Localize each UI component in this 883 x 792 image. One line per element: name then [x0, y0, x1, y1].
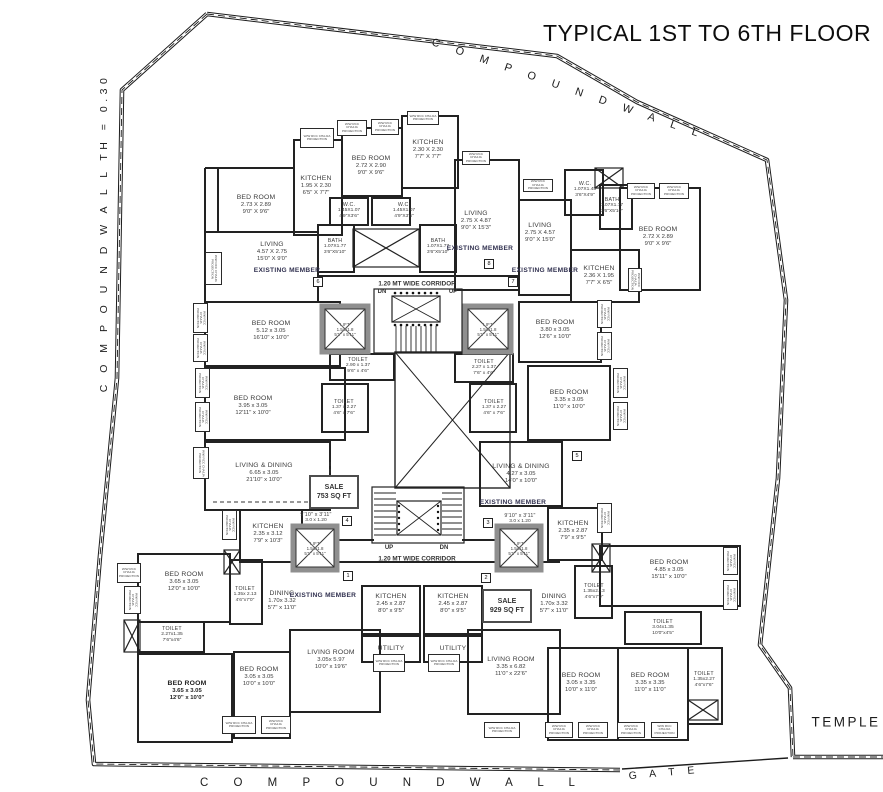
room-label: W.C.1.07X1.453'6"X4'9"	[574, 181, 596, 199]
room-label: LIVING4.57 X 2.7515'0" X 9'0"	[257, 241, 287, 263]
stair-up-label-upper: UP	[449, 289, 457, 295]
room-label: W.C.1.45X1.074'9"X3'6"	[338, 202, 360, 220]
flat-number-marker: 1	[343, 571, 353, 581]
room-label: BED ROOM2.72 X 2.899'0" X 9'6"	[639, 226, 678, 248]
room-label: KITCHEN1.95 X 2.306'5" X 7'7"	[300, 175, 331, 197]
stair-dn-label-lower: DN	[440, 545, 449, 551]
room-label: BED ROOM3.95 x 3.0512'11" x 10'0"	[234, 395, 273, 417]
room-label: KITCHEN2.35 x 3.127'9" x 10'3"	[252, 523, 283, 545]
room-label: BED ROOM3.35 x 3.0511'0" x 10'0"	[550, 389, 589, 411]
chajja-projection-box: W/W RCC CHAJJA PROJECTION	[124, 586, 141, 614]
lift-boxes	[293, 306, 541, 570]
chajja-projection-box: W/W RCC CHAJJA PROJECTION	[117, 563, 141, 583]
chajja-projection-box: W/W RCC CHAJJA PROJECTION	[613, 402, 628, 430]
chajja-projection-box: W/W RCC CHAJJA PROJECTION	[337, 120, 367, 136]
room-label: LIVING ROOM3.05x 5.9710'0" x 19'6"	[307, 649, 355, 671]
chajja-projection-box: W/W RCC CHAJJA PROJECTION	[222, 716, 256, 734]
room-label: DINING1.70x 3.325'7" x 11'0"	[540, 593, 569, 615]
flat-number-marker: 8	[484, 259, 494, 269]
room-label: UTILITY	[378, 645, 405, 653]
room-label: TOILET1.37 x 2.274'6" x 7'6"	[332, 399, 356, 417]
room-label: LIVING & DINING4.27 x 3.0514'0" x 10'0"	[492, 463, 549, 485]
room-label: KITCHEN2.35 x 2.877'9" x 9'5"	[557, 520, 588, 542]
chajja-projection-box: W/W RCC CHAJJA PROJECTION	[523, 179, 553, 192]
chajja-projection-box: W/W RCC CHAJJA PROJECTION	[627, 183, 655, 199]
room-label: LIFT1.54x1.85'1" x 5'11"	[477, 322, 498, 338]
room-label: TOILET3.04x1.3510'0"x4'5"	[652, 619, 673, 637]
flat-number-marker: 7	[508, 277, 518, 287]
staircase-lower	[372, 487, 464, 543]
corridor-label-upper: 1.20 MT WIDE CORRIDOR	[378, 281, 455, 288]
staircase-upper	[374, 289, 462, 353]
chajja-projection-box: W/W RCC CHAJJA PROJECTION	[597, 332, 612, 360]
page-title: TYPICAL 1ST TO 6TH FLOOR	[543, 20, 871, 47]
room-label: BED ROOM4.85 x 3.0515'11" x 10'0"	[650, 559, 689, 581]
room-label: TOILET2.90 x 1.379'6" x 4'6"	[346, 357, 370, 375]
room-label: LIVING ROOM3.35 x 6.8211'0" x 22'6"	[487, 656, 535, 678]
chajja-projection-box: W/W RCC CHAJJA PROJECTION	[613, 368, 628, 398]
chajja-projection-box: W/W RCC CHAJJA PROJECTION	[261, 716, 291, 734]
room-label: TOILET1.35x2.274'6"x7'6"	[693, 671, 714, 689]
room-label: BED ROOM3.05 x 3.3510'0" x 11'0"	[562, 672, 601, 694]
room-label: TOILET1.35x2.134'6"x7'0"	[583, 583, 604, 601]
duct-boxes	[124, 168, 718, 720]
room-label: BED ROOM3.65 x 3.0512'0" x 10'0"	[168, 680, 207, 702]
room-label: KITCHEN2.30 X 2.307'7" X 7'7"	[412, 139, 443, 161]
stair-up-label-lower: UP	[385, 545, 393, 551]
flat-number-marker: 2	[481, 573, 491, 583]
flat-number-marker: 4	[342, 516, 352, 526]
compound-wall-bottom-label: C O M P O U N D W A L L	[200, 777, 586, 789]
room-label: UTILITY	[440, 645, 467, 653]
compound-wall-left-label: C O M P O U N D W A L L TH = 0.30	[98, 74, 110, 393]
chajja-projection-box: W/W RCC CHAJJA PROJECTION	[484, 722, 520, 738]
chajja-projection-box: W/W RCC CHAJJA PROJECTION	[222, 510, 237, 540]
chajja-projection-box: W/W RCC CHAJJA PROJECTION	[659, 183, 689, 199]
flat-number-marker: 6	[313, 277, 323, 287]
room-label: LIVING2.75 X 4.879'0" X 15'3"	[461, 210, 491, 232]
existing-member-label: EXISTING MEMBER	[290, 592, 356, 600]
chajja-projection-box: W/W RCC CHAJJA PROJECTION	[193, 447, 209, 479]
chajja-projection-box: W/W RCC CHAJJA PROJECTION	[371, 119, 399, 135]
chajja-projection-box: W/W RCC CHAJJA PROJECTION	[407, 111, 439, 125]
room-label: LIFT1.54x1.85'1" x 5'11"	[508, 541, 529, 557]
chajja-projection-box: W/W RCC CHAJJA PROJECTION	[205, 252, 222, 285]
chajja-projection-box: W/W RCC CHAJJA PROJECTION	[651, 722, 678, 738]
chajja-projection-box: W/W RCC CHAJJA PROJECTION	[628, 268, 642, 292]
room-label: TOILET1.35x 2.134'6"x7'0"	[234, 586, 257, 604]
room-label: LIVING & DINING6.65 x 3.0521'10" x 10'0"	[235, 462, 292, 484]
corridor-label-lower: 1.20 MT WIDE CORRIDOR	[378, 556, 455, 563]
sale-area-tag: SALE929 SQ FT	[482, 589, 532, 623]
room-label: LIVING2.75 X 4.579'0" X 15'0"	[525, 222, 555, 244]
room-label: W.C.1.45X1.074'9"X3'6"	[393, 202, 415, 220]
room-label: BED ROOM2.72 X 2.909'0" X 9'6"	[352, 155, 391, 177]
room-label: BATH1.07X1.773'6"X5'10"	[601, 197, 623, 215]
chajja-projection-box: W/W RCC CHAJJA PROJECTION	[300, 128, 334, 148]
flat-number-marker: 5	[572, 451, 582, 461]
chajja-projection-box: W/W RCC CHAJJA PROJECTION	[597, 300, 612, 328]
chajja-projection-box: W/W RCC CHAJJA PROJECTION	[193, 334, 208, 362]
chajja-projection-box: W/W RCC CHAJJA PROJECTION	[373, 654, 405, 672]
flat-number-marker: 3	[483, 518, 493, 528]
room-label: BED ROOM3.80 x 3.0512'6" x 10'0"	[536, 319, 575, 341]
chajja-projection-box: W/W RCC CHAJJA PROJECTION	[723, 547, 738, 575]
floor-plan-page: TYPICAL 1ST TO 6TH FLOOR C O M P O U N D…	[0, 0, 883, 792]
chajja-projection-box: W/W RCC CHAJJA PROJECTION	[193, 303, 208, 333]
existing-member-label: EXISTING MEMBER	[512, 267, 578, 275]
room-label: BED ROOM3.35 x 3.3511'0" x 11'0"	[631, 672, 670, 694]
gate-line	[622, 758, 788, 769]
chajja-projection-box: W/W RCC CHAJJA PROJECTION	[462, 151, 490, 165]
room-label: 9'10" x 3'11"3.0 x 1.20	[300, 512, 331, 524]
chajja-projection-box: W/W RCC CHAJJA PROJECTION	[428, 654, 460, 672]
room-label: TOILET1.37 x 2.274'6" x 7'6"	[482, 399, 506, 417]
room-label: BED ROOM3.05 x 3.0510'0" x 10'0"	[240, 666, 279, 688]
chajja-projection-box: W/W RCC CHAJJA PROJECTION	[617, 722, 645, 738]
room-label: KITCHEN2.36 X 1.957'7" X 6'5"	[583, 265, 614, 287]
room-label: LIFT1.54x1.85'1" x 5'11"	[334, 322, 355, 338]
floor-plan-drawing	[0, 0, 883, 792]
room-label: 9'10" x 3'11"3.0 x 1.20	[504, 513, 535, 525]
temple-label: TEMPLE	[811, 715, 880, 730]
existing-member-label: EXISTING MEMBER	[447, 245, 513, 253]
existing-member-label: EXISTING MEMBER	[480, 499, 546, 507]
chajja-projection-box: W/W RCC CHAJJA PROJECTION	[195, 402, 210, 432]
room-label: LIFT1.54x1.85'1" x 5'11"	[304, 541, 325, 557]
room-label: TOILET2.27 x 1.377'6" x 4'6"	[472, 359, 496, 377]
stair-dn-label-upper: DN	[378, 289, 387, 295]
room-label: BED ROOM2.73 X 2.899'0" X 9'6"	[237, 194, 276, 216]
chajja-projection-box: W/W RCC CHAJJA PROJECTION	[545, 722, 573, 738]
chajja-projection-box: W/W RCC CHAJJA PROJECTION	[723, 580, 738, 610]
room-label: TOILET2.27x1.357'6"x4'6"	[161, 626, 182, 644]
room-label: BED ROOM3.65 x 3.0512'0" x 10'0"	[165, 571, 204, 593]
room-label: KITCHEN2.45 x 2.878'0" x 9'5"	[375, 593, 406, 615]
sale-area-tag: SALE753 SQ FT	[309, 475, 359, 509]
chajja-projection-box: W/W RCC CHAJJA PROJECTION	[195, 368, 210, 398]
chajja-projection-box: W/W RCC CHAJJA PROJECTION	[578, 722, 608, 738]
room-label: BED ROOM5.12 x 3.0516'10" x 10'0"	[252, 320, 291, 342]
room-label: KITCHEN2.45 x 2.878'0" x 9'5"	[437, 593, 468, 615]
room-label: BATH1.07X1.773'6"X5'10"	[324, 238, 346, 256]
chajja-projection-box: W/W RCC CHAJJA PROJECTION	[597, 503, 612, 533]
existing-member-label: EXISTING MEMBER	[254, 267, 320, 275]
